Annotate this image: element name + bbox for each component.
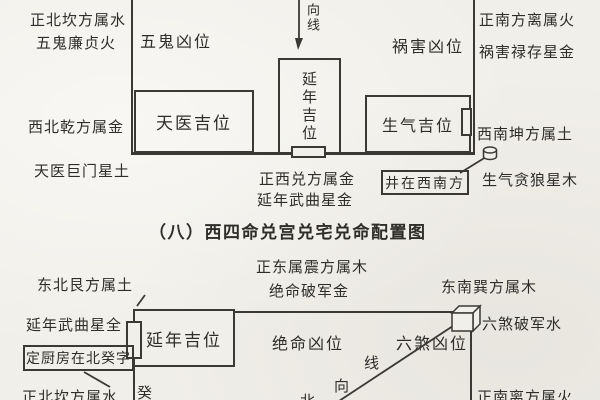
room-tianyi: 天医吉位 (134, 90, 254, 153)
room-yannian-top-label: 延年吉位 (299, 71, 320, 143)
diagonal-line-char-xiang: 向 (334, 375, 349, 396)
well-note-box: 井在西南方 (381, 170, 469, 195)
label-northwest-star: 天医巨门星土 (34, 160, 130, 181)
label-southwest-star: 生气贪狼星木 (482, 169, 578, 190)
label-north-top: 正北坎方属水 (30, 9, 126, 30)
label-south-top: 正南方离属火 (479, 9, 575, 30)
figure-title: （八）西四命兑宫兑宅兑命配置图 (149, 218, 427, 243)
orientation-line-label: 向线 (302, 3, 321, 33)
label-northeast: 东北艮方属土 (37, 274, 133, 295)
label-south-bottom: 正南离方属火 (477, 386, 573, 400)
room-shengqi: 生气吉位 (365, 95, 471, 153)
room-tianyi-label: 天医吉位 (156, 109, 232, 134)
yannian-door (291, 146, 326, 158)
label-south-star-top: 祸害禄存星金 (479, 41, 575, 62)
label-west-star: 延年武曲星金 (257, 189, 353, 210)
label-southeast: 东南巽方属木 (441, 276, 537, 297)
shengqi-door (461, 108, 472, 136)
label-north-star-top: 五鬼廉贞火 (36, 32, 116, 53)
well-cylinder-icon (484, 147, 497, 160)
well-note-label: 井在西南方 (385, 173, 465, 193)
kitchen-note-box: 定厨房在北癸字 (23, 345, 134, 371)
room-yannian-bottom: 延年吉位 (133, 309, 235, 367)
zone-liusha: 六煞凶位 (396, 330, 468, 354)
northeast-leader-tick (137, 295, 145, 306)
room-shengqi-label: 生气吉位 (382, 112, 454, 136)
label-northwest: 西北乾方属金 (28, 116, 124, 137)
zone-wugui: 五鬼凶位 (140, 28, 212, 52)
kitchen-note-label: 定厨房在北癸字 (26, 348, 131, 368)
label-east: 正东属震方属木 (256, 256, 368, 277)
kitchen-leader-line (84, 372, 110, 387)
label-yannian-star: 延年武曲星全 (26, 314, 122, 335)
diagonal-line-char-xian: 线 (364, 352, 379, 373)
label-north-bottom: 正北坎方属水 (22, 386, 118, 400)
room-yannian-top: 延年吉位 (278, 58, 341, 155)
label-liusha-star: 六煞破军水 (482, 313, 562, 334)
scanned-fengshui-page: 五鬼凶位 祸害凶位 天医吉位 延年吉位 生气吉位 向线 正北坎方属水 五鬼廉贞火… (0, 0, 600, 400)
zone-huohai: 祸害凶位 (392, 33, 464, 57)
label-east-star: 绝命破军金 (269, 280, 349, 301)
char-gui: 癸 (137, 382, 152, 400)
zone-jueming: 绝命凶位 (272, 330, 344, 354)
label-southwest: 西南坤方属土 (477, 123, 573, 144)
room-yannian-bottom-label: 延年吉位 (146, 326, 222, 351)
label-west: 正西兑方属金 (259, 168, 355, 189)
clipped-char-bei: 北 (300, 390, 315, 400)
